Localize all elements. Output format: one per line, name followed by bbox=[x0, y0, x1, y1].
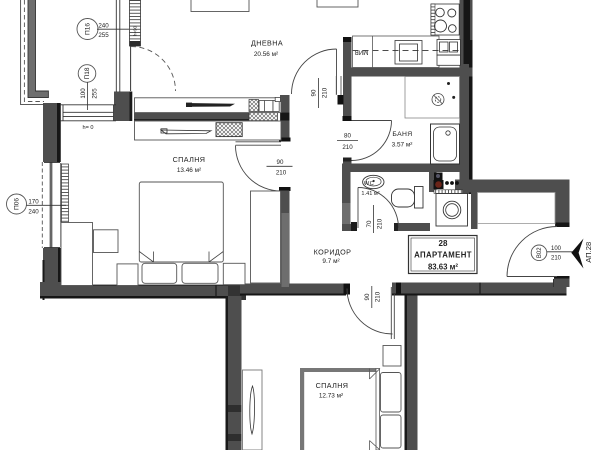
svg-text:WC: WC bbox=[364, 181, 374, 187]
svg-text:90: 90 bbox=[311, 89, 318, 96]
svg-text:13.46 м²: 13.46 м² bbox=[177, 167, 201, 174]
svg-text:В02: В02 bbox=[537, 247, 543, 258]
svg-text:П18: П18 bbox=[84, 67, 91, 79]
svg-text:80: 80 bbox=[344, 133, 351, 140]
svg-text:СПАЛНЯ: СПАЛНЯ bbox=[316, 381, 349, 390]
svg-text:28: 28 bbox=[439, 239, 448, 248]
svg-text:90: 90 bbox=[364, 293, 371, 300]
svg-text:ДНЕВНА: ДНЕВНА bbox=[251, 39, 283, 48]
svg-text:240: 240 bbox=[98, 23, 109, 30]
svg-text:100: 100 bbox=[80, 88, 87, 99]
svg-text:9.7 м²: 9.7 м² bbox=[322, 258, 339, 265]
svg-text:210: 210 bbox=[321, 87, 328, 98]
svg-text:БАНЯ: БАНЯ bbox=[392, 131, 412, 138]
svg-text:210: 210 bbox=[276, 169, 287, 176]
svg-text:П06: П06 bbox=[14, 198, 21, 210]
svg-text:h=90: h=90 bbox=[133, 25, 138, 35]
svg-text:20.56 м²: 20.56 м² bbox=[254, 51, 278, 58]
svg-text:П16: П16 bbox=[85, 23, 92, 35]
svg-text:h= 0: h= 0 bbox=[82, 125, 93, 131]
svg-text:100: 100 bbox=[551, 246, 562, 252]
svg-text:240: 240 bbox=[28, 208, 39, 215]
svg-text:70: 70 bbox=[366, 220, 373, 227]
svg-text:1.41 м²: 1.41 м² bbox=[361, 191, 379, 197]
svg-text:210: 210 bbox=[376, 218, 383, 229]
svg-text:КОРИДОР: КОРИДОР bbox=[314, 248, 352, 257]
svg-text:АП.28: АП.28 bbox=[584, 242, 593, 263]
svg-text:210: 210 bbox=[375, 291, 382, 302]
svg-text:83.63 м²: 83.63 м² bbox=[428, 262, 458, 271]
svg-text:АПАРТАМЕНТ: АПАРТАМЕНТ bbox=[414, 250, 472, 259]
svg-text:СПАЛНЯ: СПАЛНЯ bbox=[173, 155, 206, 164]
svg-text:12.73 м²: 12.73 м² bbox=[319, 393, 343, 400]
svg-text:90: 90 bbox=[277, 159, 284, 166]
svg-text:255: 255 bbox=[92, 88, 99, 99]
svg-text:210: 210 bbox=[551, 256, 562, 262]
svg-text:170: 170 bbox=[28, 199, 39, 206]
svg-text:255: 255 bbox=[98, 32, 109, 39]
svg-text:3.57 м²: 3.57 м² bbox=[392, 142, 413, 149]
svg-text:МИВ: МИВ bbox=[355, 49, 369, 56]
svg-text:210: 210 bbox=[342, 144, 353, 151]
